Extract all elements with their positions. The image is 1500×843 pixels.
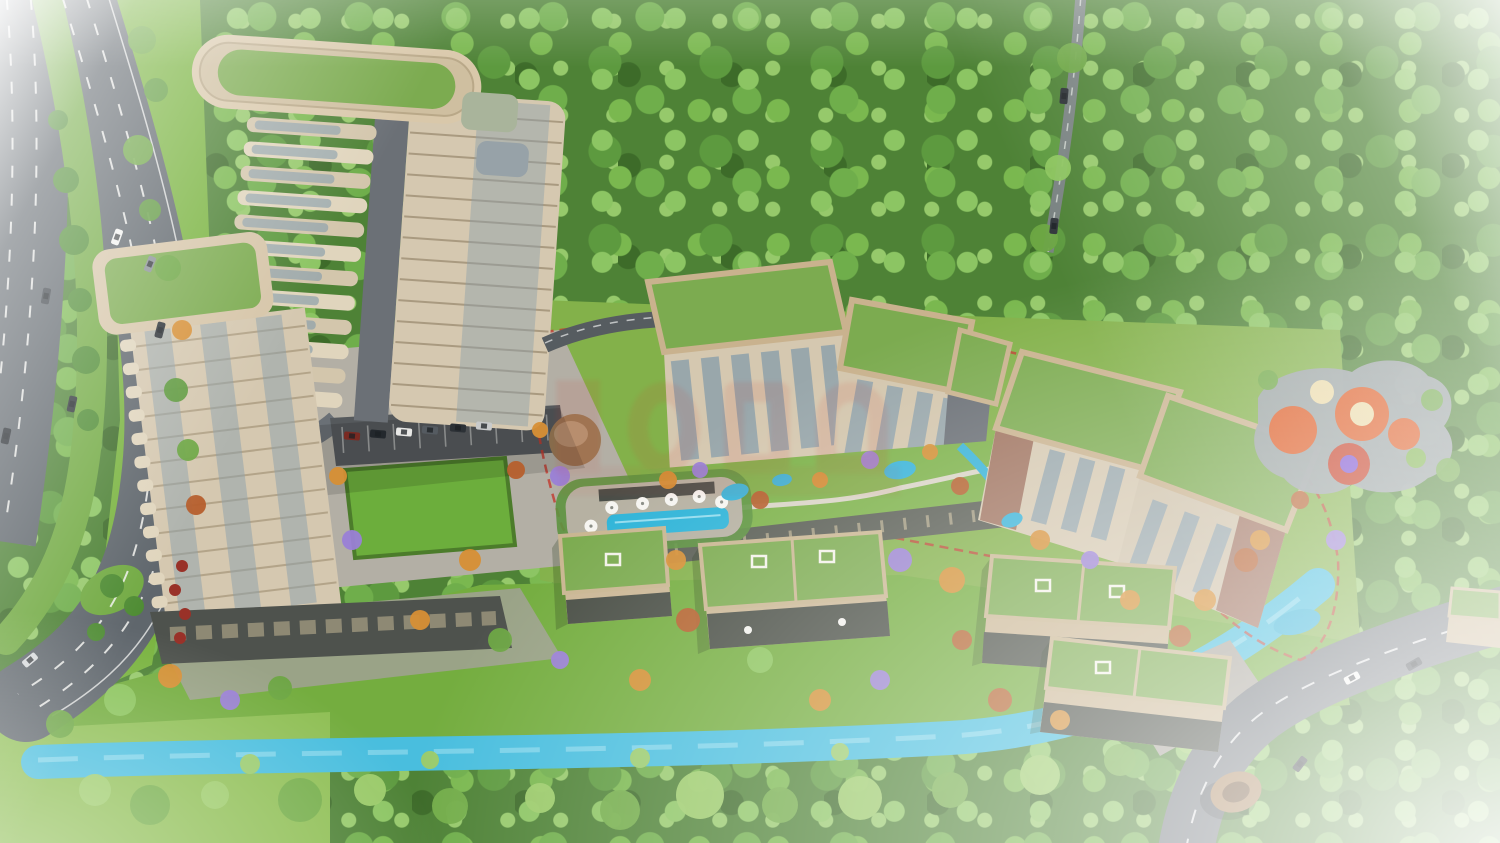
tree [809, 689, 831, 711]
site-plan-layer [0, 0, 1500, 843]
tree [1081, 551, 1099, 569]
tree [666, 550, 686, 570]
tree [342, 530, 362, 550]
villa2-patio-table-a [744, 626, 752, 634]
tree [1234, 548, 1258, 572]
tree [861, 451, 879, 469]
tree [939, 567, 965, 593]
tree [329, 467, 347, 485]
playground-circle [1310, 380, 1334, 404]
tree [922, 444, 938, 460]
tree [751, 491, 769, 509]
carriageway-outer [0, 0, 24, 540]
cafe-umbrella [176, 560, 188, 572]
tree [747, 647, 773, 673]
tree [1045, 155, 1071, 181]
tree [988, 688, 1012, 712]
tree [1030, 530, 1050, 550]
tree [1169, 625, 1191, 647]
tree [692, 462, 708, 478]
tower1-roof-terrace-b [475, 140, 529, 178]
tree [220, 690, 240, 710]
car [396, 427, 413, 436]
canal-tree [630, 748, 650, 768]
car [1292, 755, 1308, 773]
tree [1120, 590, 1140, 610]
tree [1291, 491, 1309, 509]
aerial-render [0, 0, 1500, 843]
car-glass [349, 433, 355, 439]
canal-tree [600, 790, 640, 830]
canal-tree [676, 771, 724, 819]
tree [532, 422, 548, 438]
playground-circle [1388, 418, 1420, 450]
tree [139, 199, 161, 221]
median-tree [68, 288, 92, 312]
tree [507, 461, 525, 479]
car [370, 429, 387, 438]
canal-tree [354, 774, 386, 806]
tree [158, 664, 182, 688]
tree [951, 477, 969, 495]
car-glass [43, 293, 49, 300]
car [344, 431, 361, 440]
car-glass [1061, 93, 1067, 99]
tree [46, 710, 74, 738]
tree [676, 608, 700, 632]
tree [177, 439, 199, 461]
tree [268, 676, 292, 700]
canal-tree [525, 783, 555, 813]
villa-5-partial [1446, 588, 1500, 648]
villa5-roof [1449, 588, 1500, 620]
median-tree [59, 225, 89, 255]
canal-tree [201, 781, 229, 809]
tree [104, 684, 136, 716]
canal-tree [762, 787, 798, 823]
tree [1258, 370, 1278, 390]
tree [812, 472, 828, 488]
tree [1421, 389, 1443, 411]
tree [870, 670, 890, 690]
playground [1254, 360, 1452, 494]
tree [629, 669, 651, 691]
tree [164, 378, 188, 402]
median-tree [124, 596, 144, 616]
tree [888, 548, 912, 572]
car-glass [455, 425, 461, 431]
villa2-patio-table-b [838, 618, 846, 626]
median-tree [48, 110, 68, 130]
median-tree [87, 623, 105, 641]
tree [1194, 589, 1216, 611]
villa-2 [692, 532, 890, 654]
car [422, 425, 439, 434]
car-glass [375, 431, 381, 437]
villa1-roof [560, 528, 668, 593]
playground-green-patch [1406, 448, 1426, 468]
tree [550, 466, 570, 486]
tree [410, 610, 430, 630]
canal-tree [1104, 744, 1136, 776]
playground-circle [1269, 406, 1317, 454]
villa-1 [552, 528, 672, 630]
median-tree [77, 409, 99, 431]
canal-tree [838, 776, 882, 820]
median-tree [72, 346, 100, 374]
tree [128, 26, 156, 54]
car-glass [401, 429, 407, 435]
car [1059, 88, 1068, 105]
canal-tree [79, 774, 111, 806]
playground-circle [1340, 455, 1358, 473]
tower1-roof-terrace-a [460, 91, 519, 133]
median-tree [100, 574, 124, 598]
tree [123, 135, 153, 165]
car [1049, 218, 1059, 235]
car-glass [481, 423, 487, 429]
tree [1250, 530, 1270, 550]
canal-tree [421, 751, 439, 769]
median-tree [53, 167, 79, 193]
car-glass [427, 427, 433, 433]
tree [1050, 710, 1070, 730]
canal-tree [1020, 755, 1060, 795]
car-glass [1051, 223, 1057, 229]
tree [459, 549, 481, 571]
canal-tree [278, 778, 322, 822]
tree [488, 628, 512, 652]
c3-roof [948, 330, 1010, 404]
canal-tree [130, 785, 170, 825]
tree [1326, 530, 1346, 550]
canal-tree [932, 772, 968, 808]
tree [551, 651, 569, 669]
tree [155, 255, 181, 281]
cafe-umbrella [169, 584, 181, 596]
car [476, 421, 493, 430]
canal-tree [432, 788, 468, 824]
playground-circle [1350, 402, 1374, 426]
tree [172, 320, 192, 340]
tree [1436, 458, 1460, 482]
cafe-umbrella [174, 632, 186, 644]
tree [144, 78, 168, 102]
canal-tree [831, 743, 849, 761]
tree [659, 471, 677, 489]
forest-road [1048, 0, 1082, 252]
tree [1057, 43, 1087, 73]
car [450, 423, 467, 432]
tree [186, 495, 206, 515]
canal-tree [240, 754, 260, 774]
tree [952, 630, 972, 650]
cafe-umbrella [179, 608, 191, 620]
